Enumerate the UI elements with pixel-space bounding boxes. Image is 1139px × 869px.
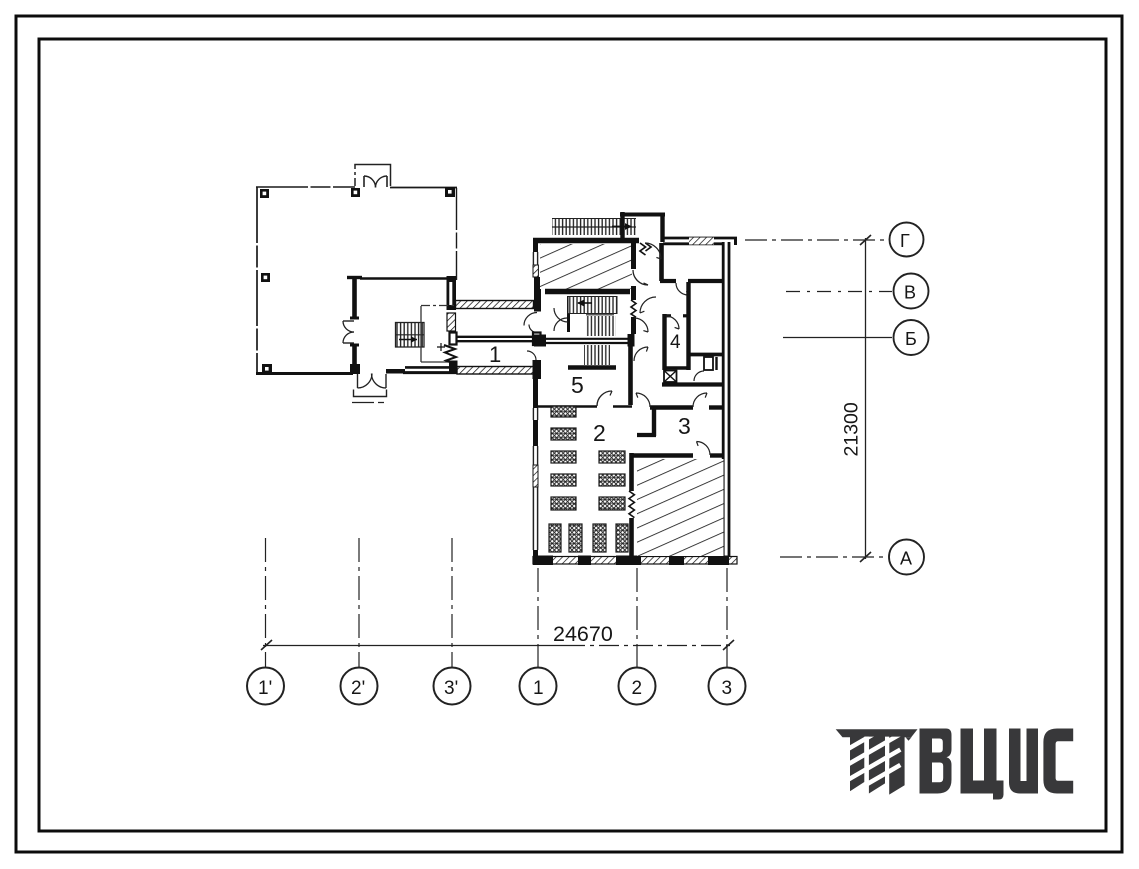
svg-text:1: 1 <box>533 678 544 699</box>
svg-text:3: 3 <box>678 413 691 439</box>
svg-text:1': 1' <box>258 678 272 699</box>
svg-text:1: 1 <box>489 342 501 367</box>
svg-text:21300: 21300 <box>841 402 863 456</box>
svg-text:А: А <box>900 549 912 569</box>
svg-text:Б: Б <box>905 329 917 349</box>
svg-text:3: 3 <box>722 678 733 699</box>
svg-text:2: 2 <box>632 678 643 699</box>
svg-text:4: 4 <box>670 332 681 353</box>
svg-text:24670: 24670 <box>553 622 613 646</box>
svg-text:Г: Г <box>900 231 910 251</box>
svg-text:3': 3' <box>444 678 458 699</box>
svg-text:2: 2 <box>593 420 606 446</box>
svg-text:В: В <box>904 283 916 303</box>
svg-text:2': 2' <box>351 678 365 699</box>
svg-text:5: 5 <box>571 372 584 398</box>
